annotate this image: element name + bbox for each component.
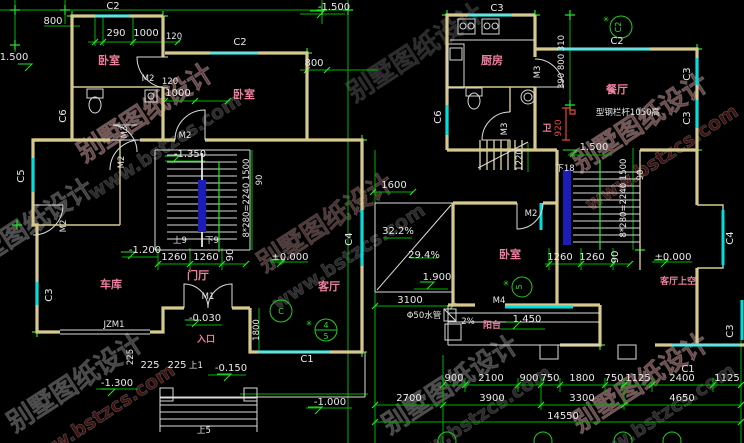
grid-bubble [663, 432, 681, 443]
dim-label: 4650 [669, 393, 694, 404]
door-label: M2 [117, 156, 127, 169]
porch-post [160, 388, 173, 401]
grid-bubble-label: C2 [614, 22, 623, 33]
window-label: C4 [725, 231, 736, 244]
toilet [468, 93, 480, 109]
room-label-living: 客厅 [317, 279, 340, 293]
level-label: 1.500 [580, 142, 609, 153]
window-label: C3 [682, 67, 693, 80]
grid-bubble [534, 432, 552, 443]
room-label-wc: 卫 [542, 123, 551, 134]
stair-note: 上1 [189, 361, 203, 371]
room-label-dining: 餐厅 [605, 82, 628, 96]
dim-label: 1000 [133, 28, 158, 39]
dim-label: 390 800 310 [557, 35, 567, 89]
pipe-note: Φ50水管 [407, 310, 442, 321]
window-label: C6 [433, 110, 444, 123]
dim-label: 1000 [165, 88, 190, 99]
stair-hatch [563, 170, 571, 245]
dim-label: 2100 [478, 373, 503, 384]
dim-label: 90 [225, 249, 236, 262]
door-label: M3 [500, 123, 510, 136]
level-label: -0.030 [189, 313, 221, 324]
door-label: M3 [533, 66, 543, 79]
room-label-garage: 车库 [100, 277, 122, 291]
dim-label: 3900 [479, 393, 504, 404]
star-mark: ✳ [306, 319, 313, 328]
wall [697, 205, 723, 268]
toilet [89, 97, 101, 113]
column [618, 345, 636, 359]
dim-label: 3100 [397, 295, 422, 306]
column [540, 345, 558, 359]
dim-label: 1260 [161, 252, 186, 263]
toilet-tank [466, 88, 482, 96]
kitchen-sink [450, 48, 462, 60]
dim-label: 120 [166, 32, 182, 42]
door-label: M1 [202, 292, 215, 302]
level-label: 1.450 [513, 314, 542, 325]
slope-label: 32.2% [382, 226, 414, 237]
room-label-foyer: 门厅 [187, 268, 209, 282]
dim-label: 1600 [381, 180, 406, 191]
level-symbol [18, 64, 32, 71]
watermark-text: 别墅图纸设计 [0, 172, 99, 284]
level-label: -0.150 [215, 363, 247, 374]
door-label: M2 [142, 74, 155, 84]
room-label-balcony: 阳台 [483, 319, 501, 331]
slope-label: 2% [461, 317, 475, 327]
dim-label-red: 920 [554, 119, 564, 136]
dim-label: 900 [444, 373, 463, 384]
porch-edge [160, 352, 365, 397]
window-label: C3 [490, 3, 503, 14]
level-label: -1.200 [129, 245, 161, 256]
stair-dim: 8*280=2240 1500 [242, 159, 252, 238]
grid-bubble-label: C [278, 307, 284, 316]
stair-note: 上9 [173, 236, 187, 246]
stair-dim: 8*280=2240 1500 [619, 159, 629, 238]
grid-bubble-label: 5 [515, 284, 524, 289]
door-label: M2 [59, 220, 69, 233]
dim-label: 225 [140, 360, 159, 371]
window-label: C2 [233, 37, 246, 48]
door-label: M2 [179, 131, 192, 141]
level-label: ±0.000 [654, 252, 691, 263]
dim-label: 120 [162, 77, 178, 87]
dim-label: 90 [255, 175, 265, 186]
star-mark: ✳ [603, 15, 610, 24]
level-label: 1.900 [423, 272, 452, 283]
dim-label: 225 [167, 360, 186, 371]
window-label: C5 [16, 169, 27, 182]
dim-label: 1800 [569, 373, 594, 384]
stair-note: 下18 [555, 164, 574, 174]
column [445, 324, 461, 340]
dim-label: 2400 [669, 373, 694, 384]
dim-label: 800 [43, 16, 62, 27]
stair-hatch [198, 180, 206, 232]
window-label: C3 [44, 288, 55, 301]
dim-label: 90 [636, 170, 646, 181]
window-label: C3 [725, 324, 736, 337]
level-label: -1.000 [314, 397, 346, 408]
room-label-entrance: 入口 [196, 334, 215, 345]
door-label: M4 [493, 296, 506, 306]
basin-bowl [524, 93, 532, 101]
dim-label: 1125 [625, 373, 650, 384]
dim-label: 1800 [252, 319, 262, 341]
window-label: C2 [106, 1, 119, 12]
window-label: C3 [682, 111, 693, 124]
dim-label: 225 [126, 349, 136, 365]
dim-label: 3300 [569, 393, 594, 404]
room-label-bedroom: 卧室 [98, 53, 120, 67]
grid-bubble-label: 5 [323, 332, 328, 341]
dim-label: 800 [304, 58, 323, 69]
wall [560, 305, 600, 345]
window-label: C4 [344, 232, 355, 245]
window-label: C1 [300, 354, 313, 365]
cad-viewport: 别墅图纸设计www.bstzcs.com别墅图纸设计www.bstzcs.com… [0, 0, 744, 443]
stair-note: 上5 [197, 426, 211, 436]
door-label: JZM1 [102, 320, 124, 330]
level-label: 1.500 [0, 52, 28, 63]
window-label: C6 [58, 109, 69, 122]
stove-burner [492, 23, 498, 29]
rolling-door-JZM1 [60, 330, 150, 334]
room-label-bedroom: 卧室 [233, 87, 255, 101]
basin-bowl [521, 90, 535, 104]
room-label-living-void: 客厅上空 [659, 275, 696, 287]
dim-label: 90 [610, 251, 621, 264]
railing-note: 型钢栏杆1050高 [596, 107, 660, 118]
dim-label: 1260 [193, 252, 218, 263]
level-label: -1.300 [101, 378, 133, 389]
level-label: ±0.000 [271, 252, 308, 263]
dim-label: 1125 [714, 373, 739, 384]
dim-label: 1220 [515, 149, 525, 171]
door-label: M2 [525, 209, 538, 219]
dim-label: 14550 [547, 411, 579, 422]
room-label-kitchen: 厨房 [481, 53, 503, 67]
room-label-bedroom: 卧室 [499, 247, 521, 261]
dim-label: 750 [604, 373, 623, 384]
grid-bubble-label: 4 [323, 321, 328, 330]
slope-label: 29.4% [408, 250, 440, 261]
dim-label: 900 [519, 373, 538, 384]
level-symbol [420, 282, 434, 289]
level-label: -1.500 [318, 2, 350, 13]
floor-plan-drawing: 别墅图纸设计www.bstzcs.com别墅图纸设计www.bstzcs.com… [0, 0, 744, 443]
window-label: C2 [610, 36, 623, 47]
floor-drain-x [444, 309, 456, 321]
dim-label: 290 [106, 28, 125, 39]
dim-label: 1260 [547, 252, 572, 263]
stair-note: 下9 [205, 236, 219, 246]
dim-label: 1260 [579, 252, 604, 263]
dim-label: 750 [540, 373, 559, 384]
star-mark: ✳ [503, 279, 510, 288]
door-label: M3 [120, 126, 130, 139]
dim-label: 2700 [396, 393, 421, 404]
level-label: -1.350 [174, 149, 206, 160]
